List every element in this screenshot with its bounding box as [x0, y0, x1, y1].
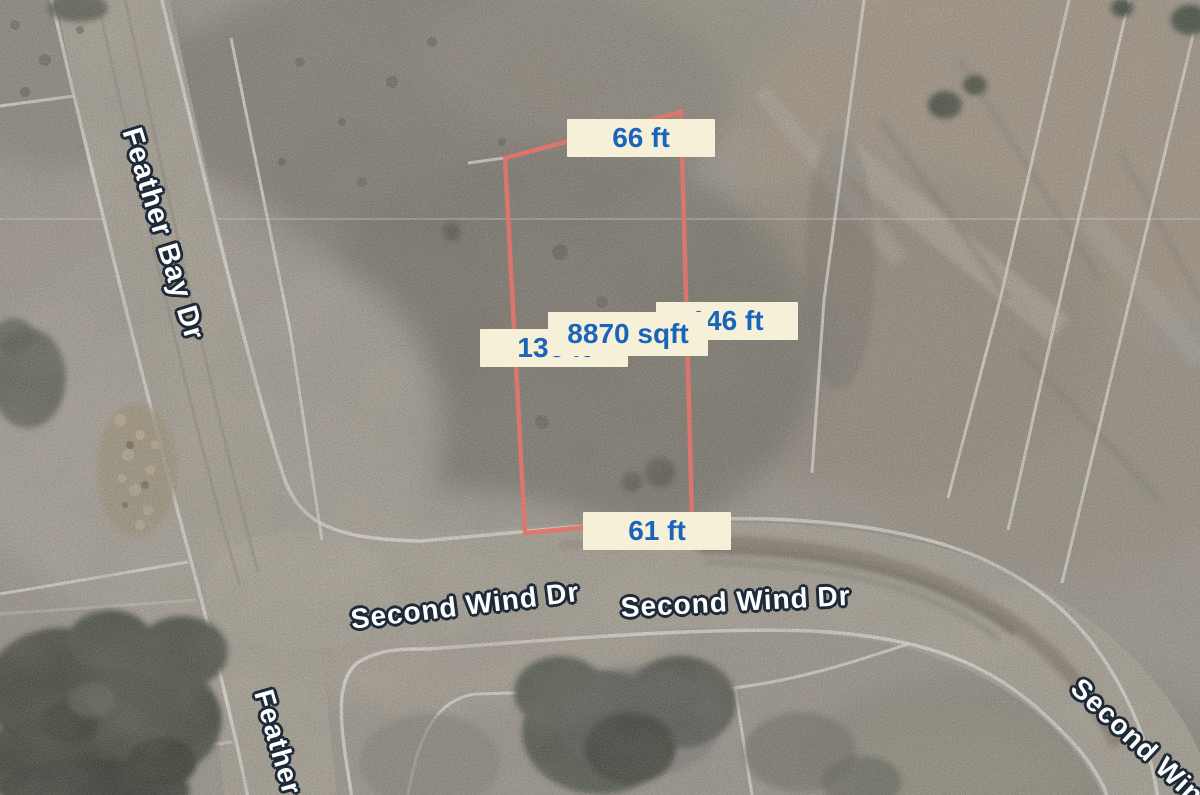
- measurement-label-bottom-61ft: 61 ft: [583, 512, 731, 550]
- measurement-label-area-sqft: 8870 sqft: [548, 312, 708, 356]
- satellite-map-canvas[interactable]: Feather Bay Dr Feather Bay Dr Second Win…: [0, 0, 1200, 795]
- measurement-label-top-66ft: 66 ft: [567, 119, 715, 157]
